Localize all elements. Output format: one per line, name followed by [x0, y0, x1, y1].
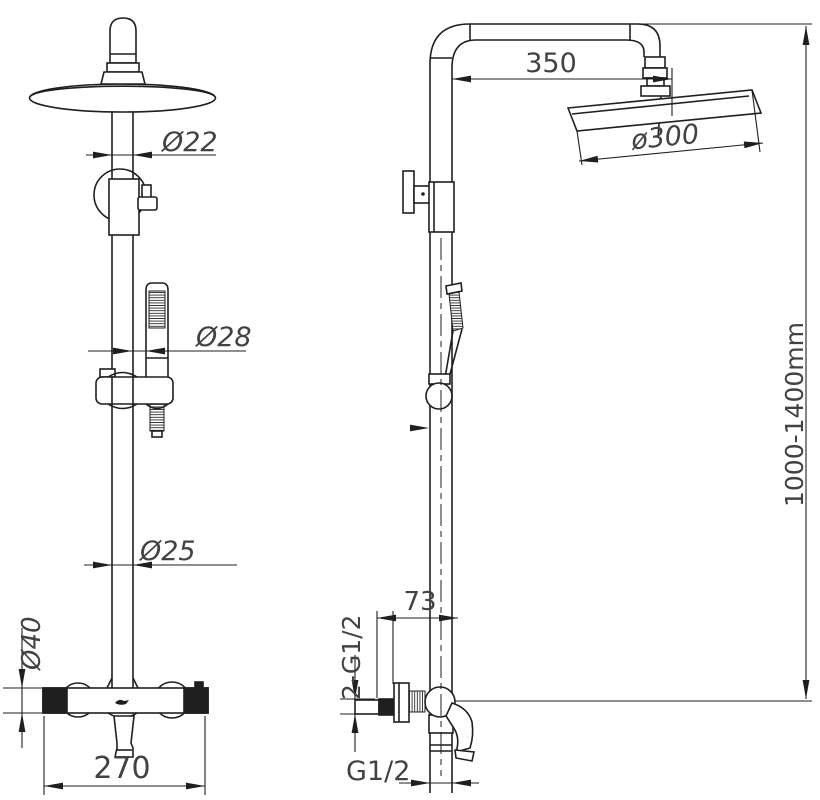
supply-flange [394, 683, 409, 722]
arrowhead [113, 348, 132, 355]
hand-shower-front [146, 283, 168, 377]
dim-hand-shower-label: Ø28 [195, 322, 252, 353]
arrowhead [803, 680, 810, 699]
dimensions: Ø22 Ø28 Ø25 Ø40 [3, 24, 812, 795]
dim-height-range-label: 1000-1400mm [780, 322, 809, 507]
diverter-knob [142, 185, 151, 198]
mixer-valve-front [43, 678, 208, 757]
diverter-knob-cap [138, 197, 157, 210]
wall-bracket-side [403, 171, 454, 232]
arrowhead [452, 780, 471, 787]
dim-pipe-top-label: Ø22 [161, 127, 218, 158]
dim-wall-offset: 73 [377, 587, 458, 698]
mixer-button [195, 682, 203, 688]
dim-outlet-thread: G1/2 [346, 756, 479, 787]
pointer-arrowhead [410, 425, 429, 432]
arrowhead [19, 713, 26, 732]
arrowhead [186, 783, 205, 790]
side-view [355, 24, 761, 793]
supply-nipple [409, 691, 425, 712]
dim-pipe-lower-label: Ø25 [139, 536, 196, 567]
dim-valve-width-label: 270 [93, 751, 150, 786]
dim-pipe-top-diameter: Ø22 [86, 127, 218, 158]
supply-black-section [379, 699, 395, 715]
shower-head-top-connector [101, 18, 145, 84]
arrowhead [133, 152, 152, 159]
arrowhead [93, 152, 112, 159]
arrowhead [352, 714, 359, 733]
dim-valve-body-label: Ø40 [17, 616, 47, 671]
shower-technical-drawing: Ø22 Ø28 Ø25 Ø40 [0, 0, 820, 800]
dim-valve-body-diameter: Ø40 [3, 616, 47, 748]
tub-spout-lip [455, 750, 474, 761]
dim-arm-reach-label: 350 [525, 48, 577, 79]
dim-pipe-lower-diameter: Ø25 [84, 536, 237, 568]
dim-inlet-thread: 2-G1/2 [337, 615, 375, 752]
dim-wall-offset-label: 73 [403, 587, 436, 617]
mixer-handle-right [184, 688, 208, 713]
dim-outlet-thread-label: G1/2 [346, 756, 410, 787]
overhead-shower-front [30, 84, 216, 112]
slider-knob-side [426, 374, 452, 409]
arrowhead [452, 76, 471, 83]
arrowhead [19, 669, 26, 688]
arrowhead [803, 26, 810, 45]
arrowhead [377, 615, 396, 622]
bracket-screw [421, 192, 425, 196]
drawing-svg: Ø22 Ø28 Ø25 Ø40 [0, 0, 820, 800]
mixer-valve-side [425, 687, 474, 761]
arrowhead [93, 562, 112, 569]
arrowhead [44, 783, 63, 790]
arrowhead [744, 140, 764, 149]
arrowhead [439, 615, 458, 622]
wall-bracket-front [109, 179, 157, 235]
arrowhead [411, 780, 430, 787]
dim-head-diameter-label: ø300 [629, 119, 701, 157]
hand-shower-side [445, 283, 463, 378]
dim-inlet-thread-label: 2-G1/2 [337, 615, 366, 700]
mixer-handle-left [43, 688, 67, 713]
